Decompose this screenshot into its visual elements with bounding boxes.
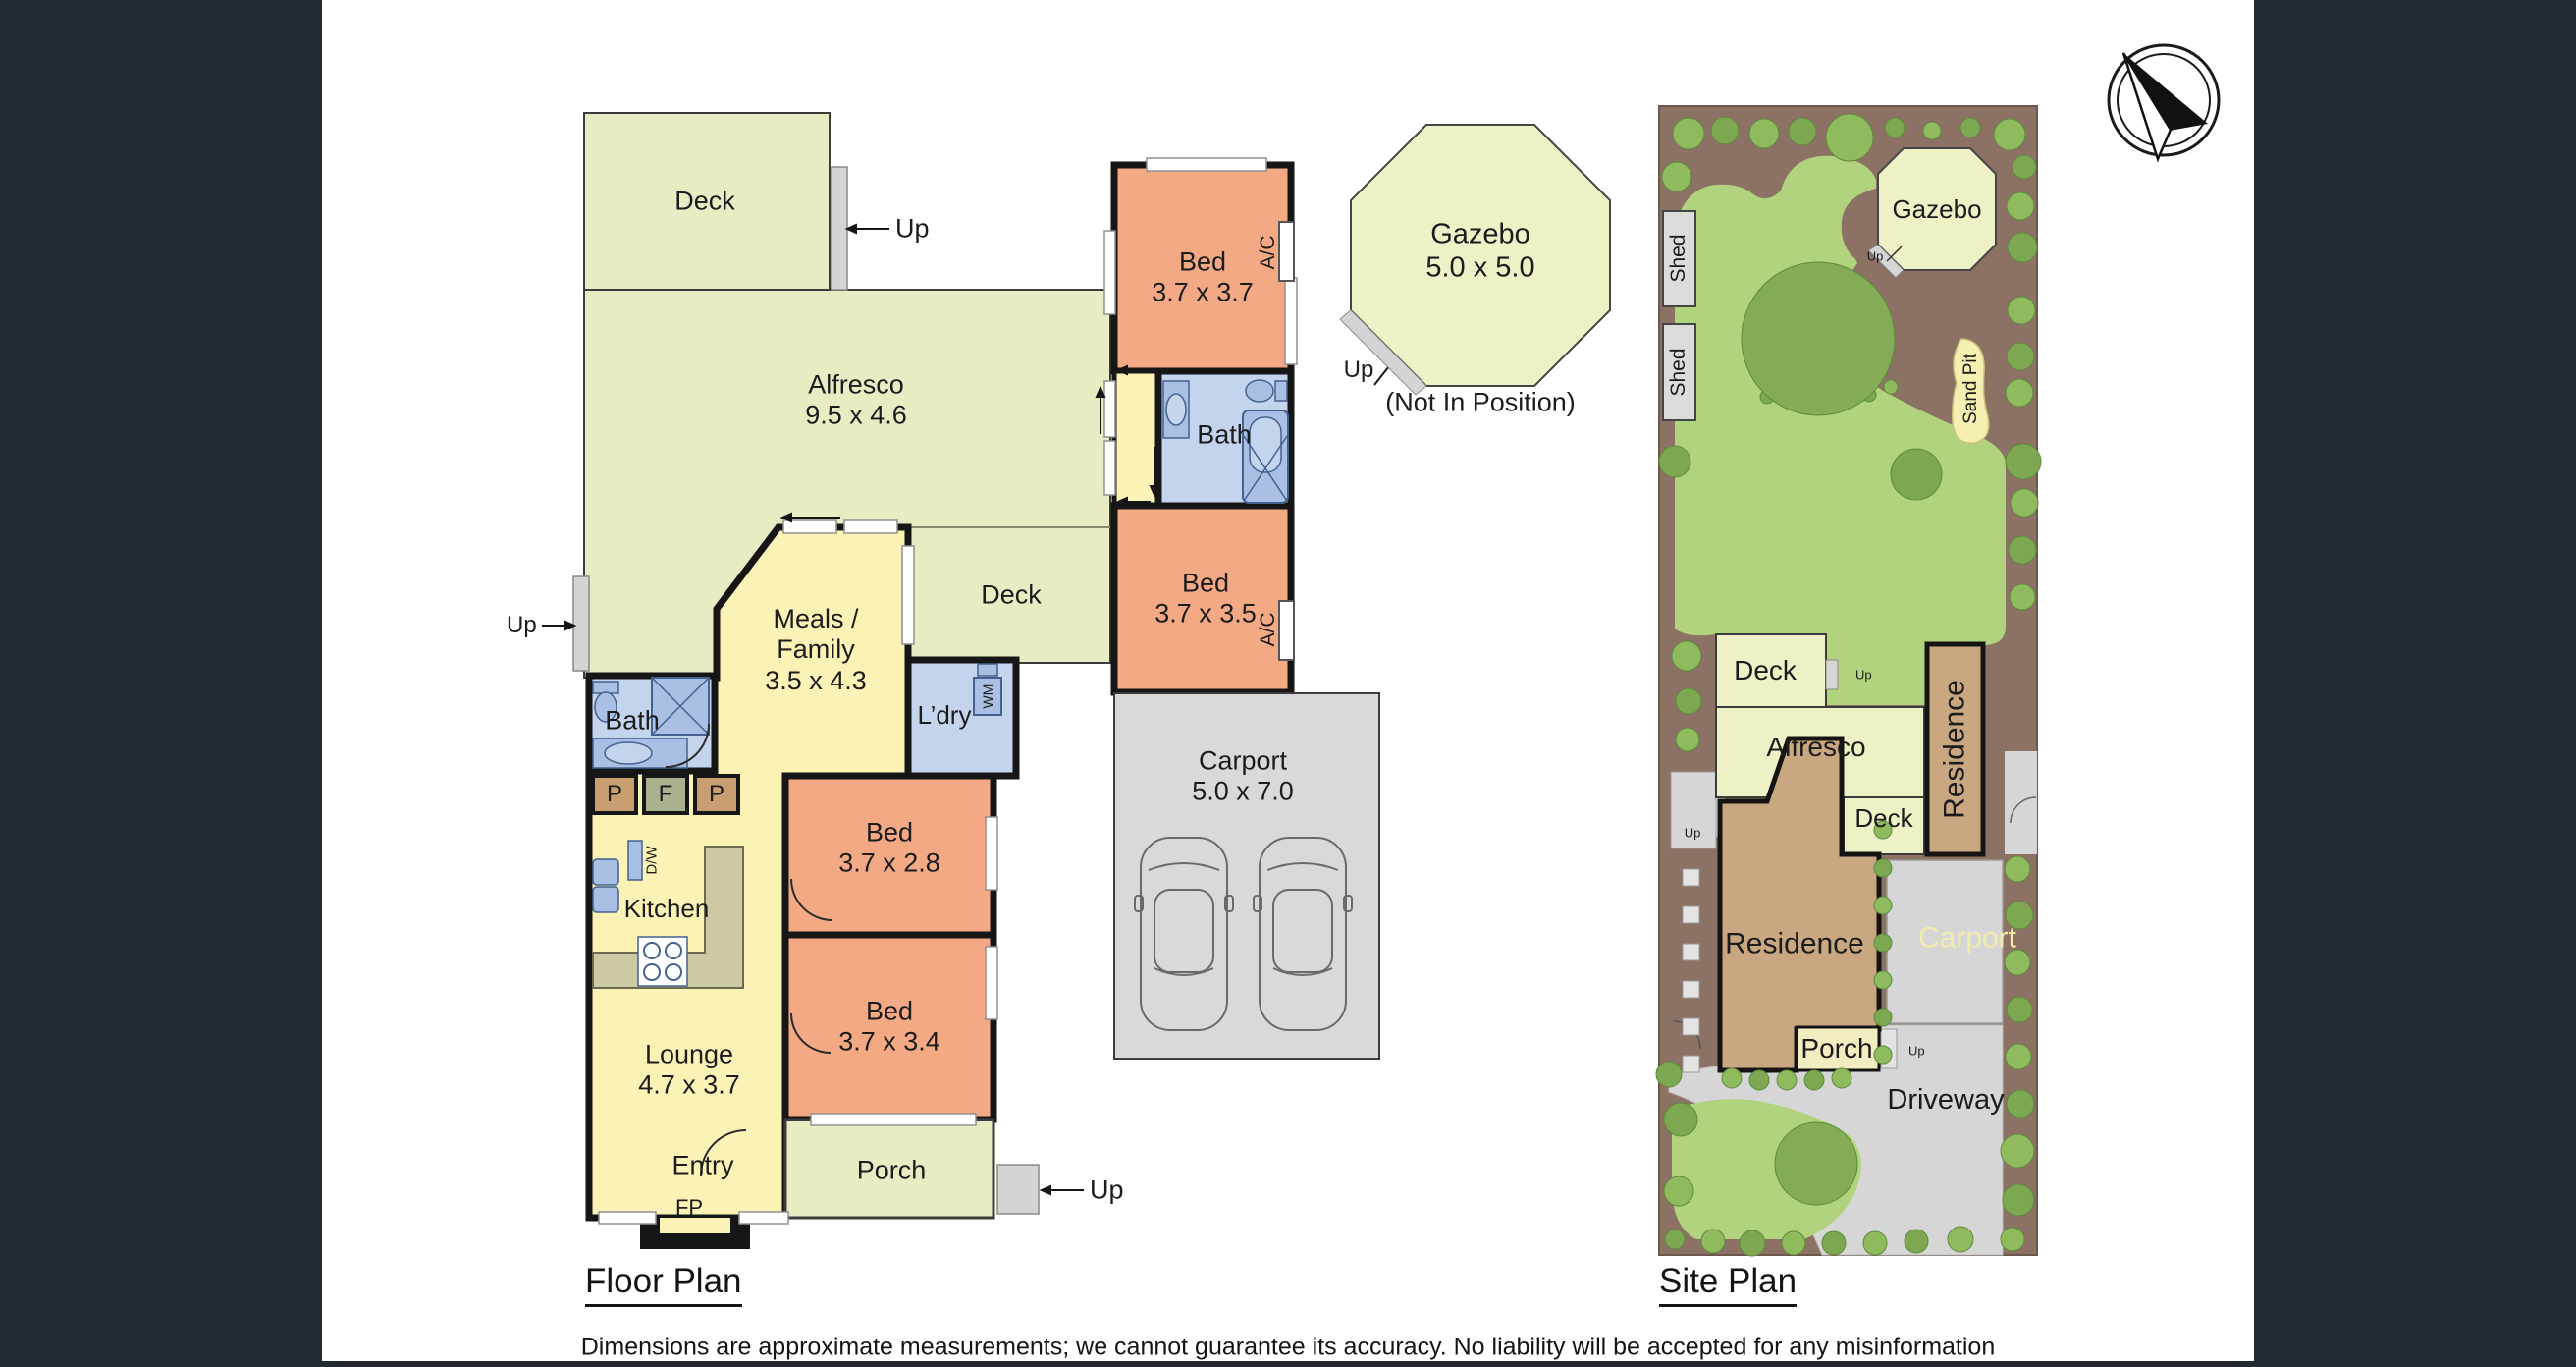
north-compass-icon xyxy=(2109,45,2219,159)
label-fp: FP xyxy=(675,1195,703,1221)
label-pantry-1: P xyxy=(607,781,622,808)
label-ac-2: A/C xyxy=(1257,612,1280,646)
label-lounge: Lounge 4.7 x 3.7 xyxy=(638,1040,740,1102)
label-bed1: Bed 3.7 x 3.7 xyxy=(1152,247,1254,309)
label-site-gazebo: Gazebo xyxy=(1892,194,1981,224)
label-site-residence-right: Residence xyxy=(1939,680,1973,819)
label-shed-2: Shed xyxy=(1667,348,1690,396)
label-site-porch: Porch xyxy=(1800,1033,1872,1065)
label-site-deck-upper: Deck xyxy=(1734,655,1797,686)
label-sand-pit: Sand Pit xyxy=(1960,354,1982,424)
label-ac-1: A/C xyxy=(1257,235,1280,269)
label-up-gazebo: Up xyxy=(1344,356,1374,384)
label-gazebo: Gazebo 5.0 x 5.0 xyxy=(1425,218,1534,284)
ac-unit-1 xyxy=(1279,222,1294,281)
label-fridge: F xyxy=(659,781,673,808)
label-wm: WM xyxy=(980,684,995,709)
label-bed2: Bed 3.7 x 3.5 xyxy=(1154,569,1257,630)
label-site-up-porch: Up xyxy=(1908,1043,1925,1058)
label-kitchen: Kitchen xyxy=(624,894,710,923)
label-dw: D/W xyxy=(643,846,660,874)
label-carport: Carport 5.0 x 7.0 xyxy=(1192,746,1294,808)
label-site-alfresco: Alfresco xyxy=(1766,732,1865,763)
label-site-up-deck: Up xyxy=(1855,667,1872,682)
label-deck-mid: Deck xyxy=(981,579,1042,610)
label-bath-right: Bath xyxy=(1197,419,1252,450)
cooktop xyxy=(638,937,687,986)
label-alfresco: Alfresco 9.5 x 4.6 xyxy=(805,370,907,432)
label-meals: Meals / Family 3.5 x 4.3 xyxy=(765,604,867,696)
label-bed4: Bed 3.7 x 3.4 xyxy=(838,997,940,1059)
side-step xyxy=(573,576,589,671)
label-site-up-pad: Up xyxy=(1685,825,1701,840)
ac-unit-2 xyxy=(1279,601,1294,660)
label-laundry: L’dry xyxy=(918,700,972,730)
label-up-deck: Up xyxy=(895,213,930,244)
label-shed-1: Shed xyxy=(1667,234,1690,282)
plan-page: Deck Up Alfresco 9.5 x 4.6 Bed 3.7 x 3.7… xyxy=(0,0,2576,1367)
deck-step xyxy=(832,167,847,290)
kitchen-sink xyxy=(593,859,618,885)
label-pantry-2: P xyxy=(709,781,724,808)
label-not-in-position: (Not In Position) xyxy=(1385,387,1576,417)
label-site-deck-lower: Deck xyxy=(1854,803,1912,833)
label-up-porch: Up xyxy=(1090,1175,1124,1205)
floor-plan-title: Floor Plan xyxy=(585,1262,742,1301)
label-porch: Porch xyxy=(857,1155,927,1185)
porch-step xyxy=(997,1165,1039,1214)
label-site-carport: Carport xyxy=(1918,922,2016,957)
disclaimer-text: Dimensions are approximate measurements;… xyxy=(581,1334,1995,1362)
label-deck-top: Deck xyxy=(674,186,735,216)
label-up-side: Up xyxy=(507,612,537,639)
label-site-residence-main: Residence xyxy=(1725,928,1864,962)
label-bed3: Bed 3.7 x 2.8 xyxy=(838,818,940,880)
label-site-up-gazebo: Up xyxy=(1867,248,1884,263)
site-plan-title: Site Plan xyxy=(1659,1262,1797,1301)
label-entry: Entry xyxy=(671,1150,733,1180)
label-bath-left: Bath xyxy=(605,705,660,736)
dishwasher xyxy=(628,841,642,880)
plan-graphics xyxy=(0,0,2576,1367)
label-driveway: Driveway xyxy=(1887,1084,2004,1118)
